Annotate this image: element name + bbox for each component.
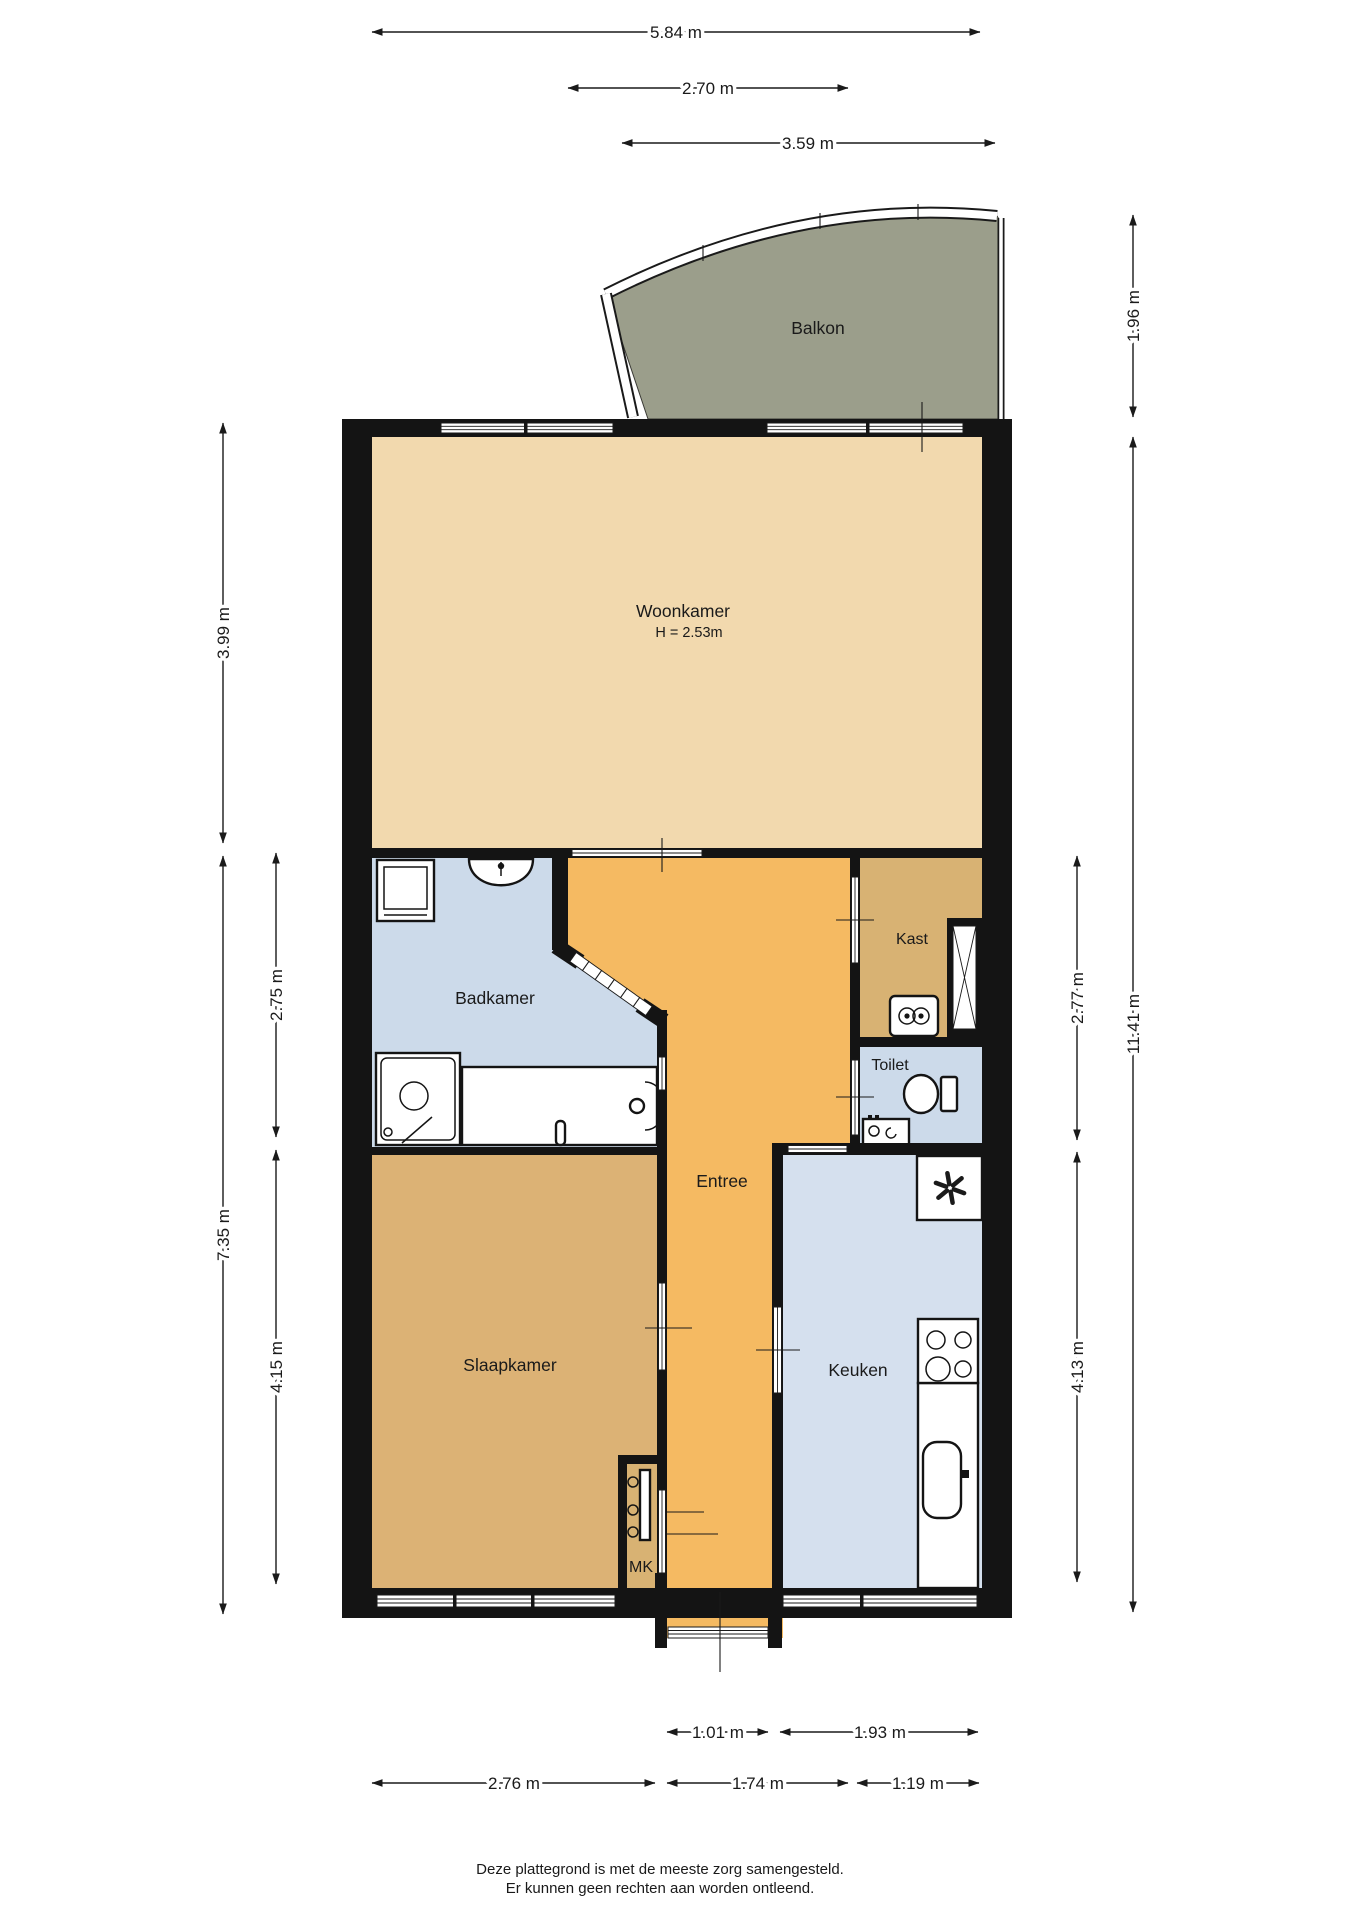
label-entree: Entree bbox=[696, 1171, 748, 1191]
label-mk: MK bbox=[629, 1559, 653, 1576]
label-slaapkamer: Slaapkamer bbox=[463, 1355, 557, 1375]
boiler-dial-dot bbox=[904, 1013, 909, 1018]
dim-left-slaapkamer: 4.15 m bbox=[267, 1341, 286, 1393]
dim-bottom-slaapkamer: 2.76 m bbox=[488, 1774, 540, 1793]
balcony bbox=[606, 204, 1002, 419]
wall-frontdoor-jamb-left bbox=[655, 1573, 667, 1648]
wall-left bbox=[342, 437, 372, 1618]
label-toilet: Toilet bbox=[871, 1057, 909, 1074]
label-kast: Kast bbox=[896, 931, 929, 948]
washing-machine-icon bbox=[377, 860, 434, 921]
footer-disclaimer-line2: Er kunnen geen rechten aan worden ontlee… bbox=[506, 1880, 815, 1897]
toilet-bowl-icon bbox=[904, 1075, 938, 1113]
kitchen-fixtures bbox=[917, 1156, 982, 1588]
footer-disclaimer-line1: Deze plattegrond is met de meeste zorg s… bbox=[476, 1861, 844, 1878]
dim-right-keuken: 4.13 m bbox=[1068, 1341, 1087, 1393]
balcony-floor bbox=[606, 213, 1002, 419]
window-mullion bbox=[531, 1593, 535, 1609]
handbasin-tap bbox=[868, 1115, 872, 1120]
dim-left-lower: 7.35 m bbox=[214, 1209, 233, 1261]
room-woonkamer bbox=[372, 437, 982, 848]
dim-right-total: 11.41 m bbox=[1124, 994, 1143, 1054]
dim-right-balcony: 1.96 m bbox=[1124, 290, 1143, 342]
dim-bottom-frontdoor: 1.01 m bbox=[692, 1723, 744, 1742]
washbasin-drain bbox=[498, 863, 504, 869]
label-woonkamer-height: H = 2.53m bbox=[655, 625, 722, 641]
dim-bottom-entree: 1.74 m bbox=[732, 1774, 784, 1793]
floorplan-page: Balkon Woonkamer H = 2.53m Badkamer Kast… bbox=[0, 0, 1358, 1920]
window-balcony-door bbox=[767, 423, 963, 433]
wall-frontdoor-jamb-right bbox=[768, 1588, 782, 1648]
window-mullion bbox=[453, 1593, 457, 1609]
kast-fixtures bbox=[890, 996, 938, 1036]
toilet-cistern bbox=[941, 1077, 957, 1111]
label-badkamer: Badkamer bbox=[455, 988, 535, 1008]
wall-kast-toilet-divider bbox=[850, 1037, 982, 1047]
handbasin-tap bbox=[875, 1115, 879, 1120]
boiler-dial-dot bbox=[918, 1013, 923, 1018]
dim-right-kast: 2.77 m bbox=[1068, 972, 1087, 1024]
extractor-unit bbox=[917, 1156, 982, 1220]
dim-bottom-keuken-span: 1.93 m bbox=[854, 1723, 906, 1742]
window-slaapkamer bbox=[377, 1595, 615, 1607]
dim-left-woonkamer: 3.99 m bbox=[214, 607, 233, 659]
dim-left-badkamer: 2.75 m bbox=[267, 969, 286, 1021]
window-mullion bbox=[866, 421, 870, 435]
wall-badkamer-east-upper bbox=[552, 858, 568, 950]
dim-bottom-keuken-right: 1.19 m bbox=[892, 1774, 944, 1793]
wall-mk-west bbox=[618, 1455, 627, 1588]
sink-tap bbox=[961, 1470, 969, 1478]
floorplan-drawing: Balkon Woonkamer H = 2.53m Badkamer Kast… bbox=[0, 0, 1358, 1920]
window-mullion bbox=[524, 421, 528, 435]
wall-right bbox=[982, 437, 1012, 1618]
bathtub-tap bbox=[556, 1121, 565, 1145]
window-mullion bbox=[860, 1593, 864, 1609]
window-keuken bbox=[783, 1595, 977, 1607]
dim-top-total: 5.84 m bbox=[650, 23, 702, 42]
bathtub-drain bbox=[630, 1099, 644, 1113]
dim-top-balcony: 3.59 m bbox=[782, 134, 834, 153]
shower-icon bbox=[376, 1053, 460, 1145]
wall-badkamer-slaapkamer bbox=[342, 1147, 667, 1155]
label-balkon: Balkon bbox=[791, 318, 845, 338]
label-keuken: Keuken bbox=[828, 1360, 887, 1380]
front-door bbox=[668, 1627, 768, 1638]
label-woonkamer: Woonkamer bbox=[636, 601, 730, 621]
dim-top-mid: 2.70 m bbox=[682, 79, 734, 98]
meter-board bbox=[640, 1470, 650, 1540]
kitchen-sink-icon bbox=[923, 1442, 961, 1518]
boiler-icon bbox=[890, 996, 938, 1036]
